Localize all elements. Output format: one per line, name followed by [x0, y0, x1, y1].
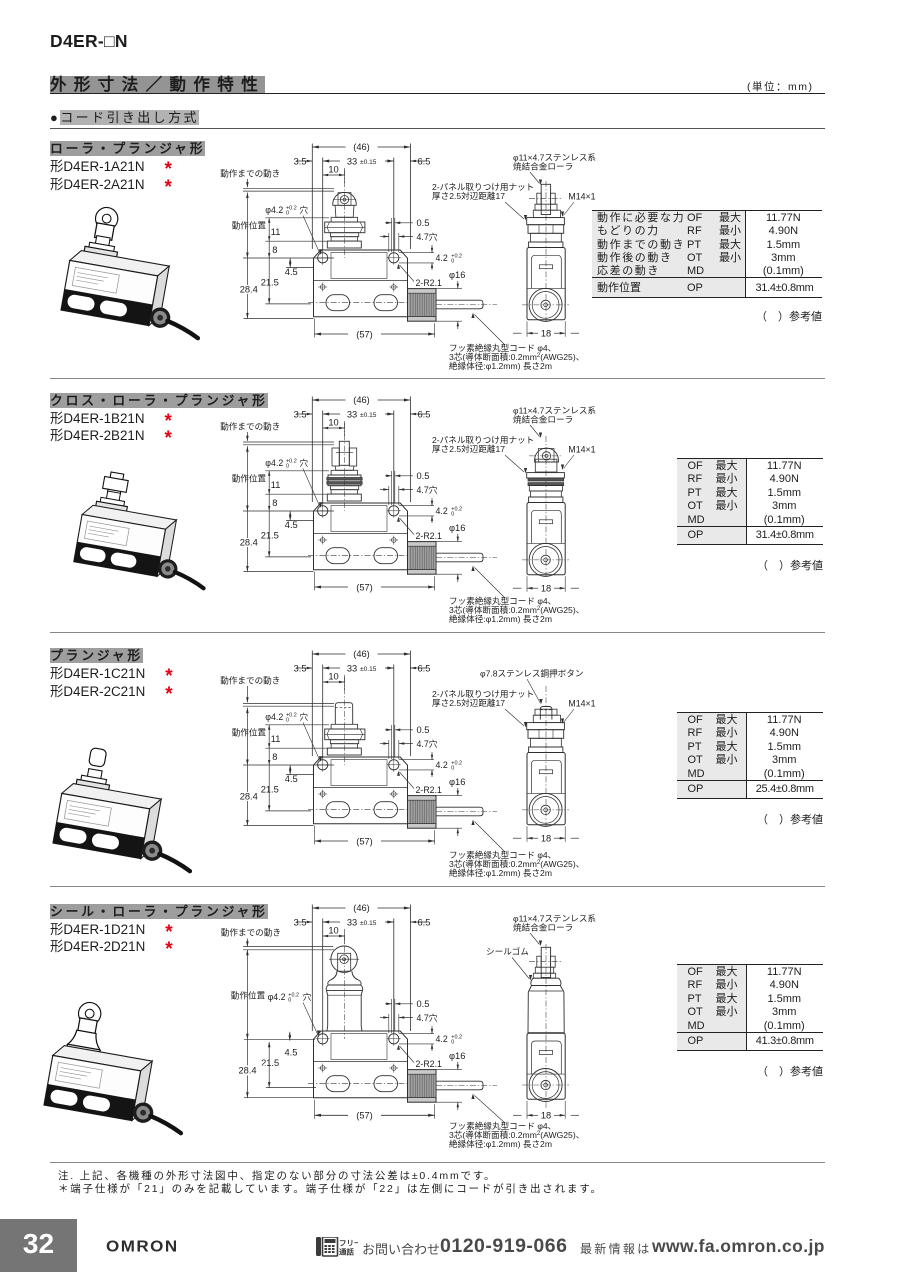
svg-text:φ16: φ16 [449, 1051, 465, 1061]
svg-text:(46): (46) [353, 903, 370, 913]
svg-text:M14×1: M14×1 [568, 445, 595, 455]
svg-text:厚さ2.5対辺距離17: 厚さ2.5対辺距離17 [432, 697, 505, 708]
svg-text:±0.15: ±0.15 [360, 159, 377, 166]
svg-text:穴: 穴 [303, 991, 312, 1002]
svg-text:0.5: 0.5 [417, 218, 430, 228]
svg-text:4.2: 4.2 [436, 1034, 448, 1044]
svg-text:10: 10 [328, 165, 338, 175]
svg-text:絶縁体径:φ1.2mm) 長さ2m: 絶縁体径:φ1.2mm) 長さ2m [449, 360, 552, 371]
svg-text:(57): (57) [356, 836, 373, 846]
svg-text:28.4: 28.4 [240, 792, 258, 802]
svg-text:4.5: 4.5 [285, 1048, 298, 1058]
svg-text:φ16: φ16 [449, 523, 465, 533]
svg-text:穴: 穴 [300, 457, 309, 468]
svg-text:0.5: 0.5 [417, 999, 430, 1009]
svg-text:0: 0 [288, 998, 291, 1004]
svg-text:2-R2.1: 2-R2.1 [416, 1059, 443, 1069]
svg-text:33: 33 [347, 156, 357, 166]
svg-text:10: 10 [328, 418, 338, 428]
svg-text:動作までの動き: 動作までの動き [221, 927, 281, 938]
svg-text:φ4.2: φ4.2 [268, 992, 286, 1002]
svg-text:動作までの動き: 動作までの動き [220, 167, 280, 178]
svg-text:10: 10 [328, 926, 338, 936]
svg-text:4.2: 4.2 [436, 253, 448, 263]
svg-text:28.4: 28.4 [240, 285, 258, 295]
svg-text:厚さ2.5対辺距離17: 厚さ2.5対辺距離17 [432, 190, 505, 201]
svg-text:φ4.2: φ4.2 [265, 458, 283, 468]
svg-text:(57): (57) [356, 1111, 373, 1121]
svg-text:0: 0 [286, 717, 289, 723]
svg-text:2-R2.1: 2-R2.1 [416, 785, 443, 795]
svg-text:3.5: 3.5 [294, 917, 307, 927]
svg-text:±0.15: ±0.15 [360, 666, 377, 673]
svg-text:±0.15: ±0.15 [360, 412, 377, 419]
svg-text:(46): (46) [353, 649, 370, 659]
svg-text:0: 0 [451, 1039, 454, 1045]
svg-text:33: 33 [347, 409, 357, 419]
svg-text:4.7穴: 4.7穴 [417, 231, 438, 242]
svg-text:8: 8 [272, 752, 277, 762]
svg-text:2-R2.1: 2-R2.1 [416, 531, 443, 541]
svg-text:φ16: φ16 [449, 270, 465, 280]
svg-text:厚さ2.5対辺距離17: 厚さ2.5対辺距離17 [432, 443, 505, 454]
svg-text:21.5: 21.5 [261, 785, 279, 795]
svg-text:4.7穴: 4.7穴 [417, 1012, 438, 1023]
svg-text:φ4.2: φ4.2 [265, 205, 283, 215]
svg-text:穴: 穴 [300, 204, 309, 215]
svg-text:絶縁体径:φ1.2mm) 長さ2m: 絶縁体径:φ1.2mm) 長さ2m [449, 613, 552, 624]
svg-text:8: 8 [272, 245, 277, 255]
svg-text:18: 18 [541, 834, 551, 844]
svg-text:M14×1: M14×1 [568, 699, 595, 709]
svg-text:18: 18 [541, 584, 551, 594]
svg-text:4.2: 4.2 [436, 760, 448, 770]
svg-text:±0.15: ±0.15 [360, 920, 377, 927]
svg-text:21.5: 21.5 [261, 278, 279, 288]
svg-text:4.7穴: 4.7穴 [417, 484, 438, 495]
svg-text:11: 11 [271, 480, 281, 490]
svg-text:8: 8 [272, 498, 277, 508]
svg-text:28.4: 28.4 [239, 1065, 257, 1075]
svg-text:33: 33 [347, 917, 357, 927]
svg-text:0.5: 0.5 [417, 471, 430, 481]
svg-text:11: 11 [271, 734, 281, 744]
svg-text:(46): (46) [353, 142, 370, 152]
svg-text:28.4: 28.4 [240, 538, 258, 548]
svg-text:10: 10 [328, 672, 338, 682]
svg-text:絶縁体径:φ1.2mm) 長さ2m: 絶縁体径:φ1.2mm) 長さ2m [449, 867, 552, 878]
svg-text:φ4.2: φ4.2 [265, 712, 283, 722]
svg-text:動作位置: 動作位置 [231, 990, 266, 1001]
svg-text:穴: 穴 [300, 711, 309, 722]
svg-text:4.7穴: 4.7穴 [417, 738, 438, 749]
svg-text:動作位置: 動作位置 [232, 472, 267, 483]
svg-text:21.5: 21.5 [261, 531, 279, 541]
svg-text:4.2: 4.2 [436, 506, 448, 516]
svg-text:焼結合金ローラ: 焼結合金ローラ [513, 922, 573, 933]
svg-text:焼結合金ローラ: 焼結合金ローラ [513, 414, 573, 425]
svg-text:フリー: フリー [339, 1239, 358, 1248]
svg-text:(46): (46) [353, 395, 370, 405]
svg-text:動作位置: 動作位置 [232, 726, 267, 737]
svg-text:11: 11 [271, 227, 281, 237]
svg-text:(57): (57) [356, 329, 373, 339]
svg-text:0: 0 [451, 258, 454, 264]
svg-text:18: 18 [541, 329, 551, 339]
svg-text:動作位置: 動作位置 [232, 219, 267, 230]
svg-text:通話: 通話 [339, 1247, 354, 1257]
svg-text:3.5: 3.5 [294, 156, 307, 166]
svg-text:M14×1: M14×1 [568, 192, 595, 202]
svg-text:6.5: 6.5 [418, 409, 431, 419]
svg-text:0: 0 [286, 463, 289, 469]
svg-text:3.5: 3.5 [294, 409, 307, 419]
svg-text:焼結合金ローラ: 焼結合金ローラ [513, 161, 573, 172]
svg-text:4.5: 4.5 [285, 520, 298, 530]
svg-text:0.5: 0.5 [417, 725, 430, 735]
svg-text:2-R2.1: 2-R2.1 [416, 278, 443, 288]
svg-text:シールゴム: シールゴム [486, 946, 529, 957]
svg-text:動作までの動き: 動作までの動き [220, 674, 280, 685]
svg-text:3.5: 3.5 [294, 663, 307, 673]
svg-text:6.5: 6.5 [418, 663, 431, 673]
svg-text:4.5: 4.5 [285, 774, 298, 784]
svg-text:絶縁体径:φ1.2mm) 長さ2m: 絶縁体径:φ1.2mm) 長さ2m [449, 1138, 552, 1149]
svg-text:0: 0 [451, 511, 454, 517]
svg-text:6.5: 6.5 [418, 156, 431, 166]
svg-text:(57): (57) [356, 582, 373, 592]
svg-text:18: 18 [541, 1111, 551, 1121]
svg-text:動作までの動き: 動作までの動き [220, 420, 280, 431]
svg-text:0: 0 [451, 765, 454, 771]
svg-text:φ16: φ16 [449, 777, 465, 787]
svg-text:6.5: 6.5 [418, 917, 431, 927]
svg-text:33: 33 [347, 663, 357, 673]
svg-text:φ7.8ステンレス鋼押ボタン: φ7.8ステンレス鋼押ボタン [480, 668, 583, 679]
svg-text:4.5: 4.5 [285, 267, 298, 277]
svg-text:0: 0 [286, 210, 289, 216]
